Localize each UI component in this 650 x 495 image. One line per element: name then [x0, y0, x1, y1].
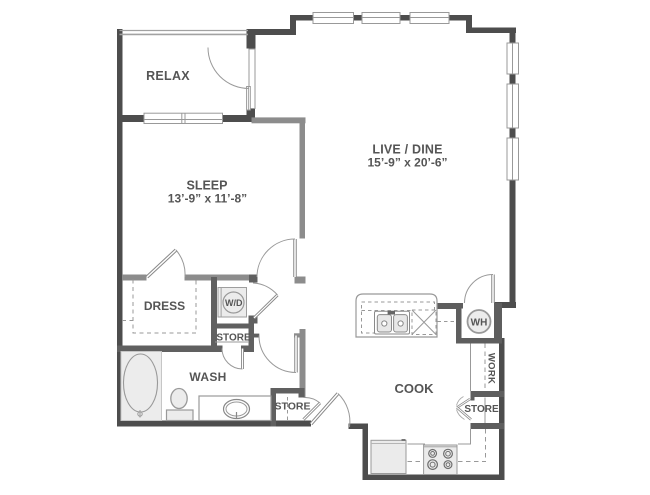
svg-text:WASH: WASH: [189, 370, 226, 384]
svg-text:STORE: STORE: [275, 401, 311, 413]
svg-text:SLEEP: SLEEP: [187, 179, 228, 193]
svg-text:15’-9” x 20’-6”: 15’-9” x 20’-6”: [367, 156, 447, 170]
svg-text:DRESS: DRESS: [144, 299, 185, 313]
svg-text:WH: WH: [471, 318, 488, 329]
svg-text:STORE: STORE: [464, 404, 499, 415]
svg-text:COOK: COOK: [395, 381, 435, 396]
svg-text:WORK: WORK: [486, 353, 497, 384]
svg-text:STORE: STORE: [216, 333, 251, 344]
svg-text:RELAX: RELAX: [146, 69, 190, 83]
svg-text:LIVE / DINE: LIVE / DINE: [372, 143, 442, 157]
svg-text:13’-9” x 11’-8”: 13’-9” x 11’-8”: [168, 192, 247, 206]
svg-text:W/D: W/D: [225, 298, 243, 308]
